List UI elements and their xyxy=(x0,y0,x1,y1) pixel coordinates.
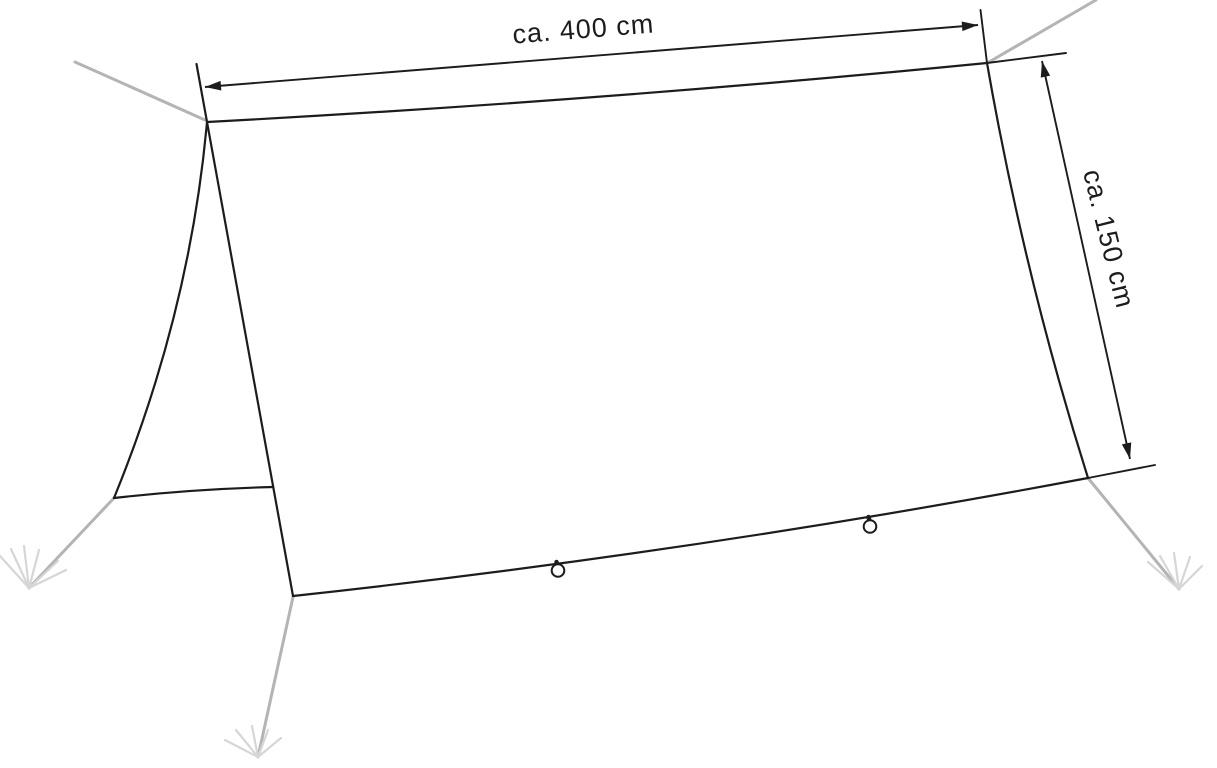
tarp-top-edge xyxy=(207,63,987,122)
tarp-outline xyxy=(114,63,1088,596)
guy-lines xyxy=(29,0,1179,757)
guy-line-bottom-front xyxy=(258,597,293,757)
width-dimension-label: ca. 400 cm xyxy=(511,9,655,50)
stake-ray xyxy=(29,570,66,588)
tarp-bottom-edge xyxy=(293,478,1088,596)
stake-mark-right xyxy=(1148,553,1202,589)
height-extension-line-bottom xyxy=(1088,465,1155,478)
tie-out-loops xyxy=(552,517,877,577)
tarp-dimension-diagram: ca. 400 cm ca. 150 cm xyxy=(0,0,1217,768)
tie-out-loop-left xyxy=(552,564,565,577)
width-extension-line-right xyxy=(981,10,988,63)
tarp-diagram-canvas: ca. 400 cm ca. 150 cm xyxy=(0,0,1217,768)
tarp-back-left-edge xyxy=(114,122,207,498)
height-dimension-label: ca. 150 cm xyxy=(1077,166,1140,311)
tarp-front-left-edge xyxy=(197,64,294,596)
guy-line-left-foot xyxy=(29,498,114,588)
stake-ray xyxy=(225,740,258,757)
guy-line-bottom-right xyxy=(1088,478,1179,589)
tarp-right-edge xyxy=(987,63,1088,478)
stake-ray xyxy=(1148,562,1179,589)
height-dimension: ca. 150 cm xyxy=(987,53,1155,478)
guy-line-peak-left xyxy=(75,62,205,120)
tie-out-loop-right xyxy=(864,520,877,533)
stake-mark-bottom xyxy=(225,726,281,757)
stake-ray xyxy=(0,556,29,588)
stake-marks xyxy=(0,546,1202,757)
tarp-left-panel-bottom-edge xyxy=(114,487,273,498)
guy-line-top-right xyxy=(989,0,1096,62)
width-dimension: ca. 400 cm xyxy=(205,9,987,87)
